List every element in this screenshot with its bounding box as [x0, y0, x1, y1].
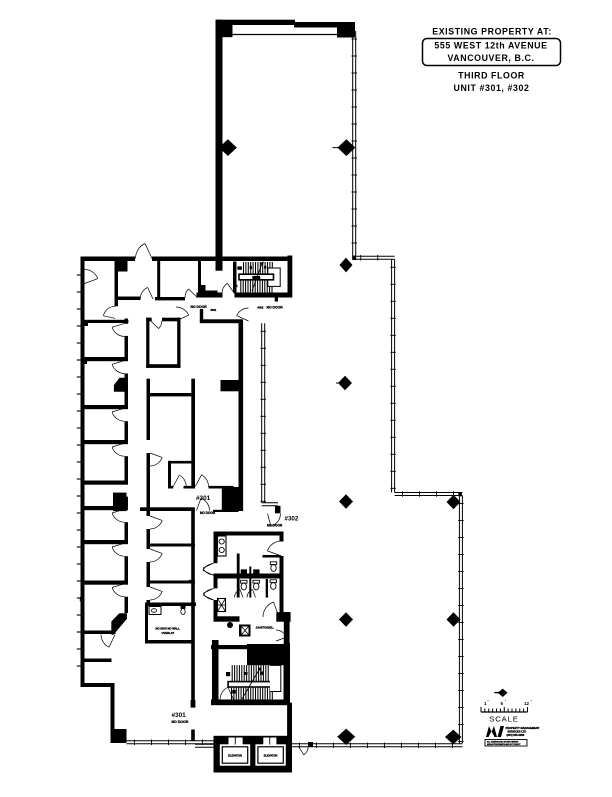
svg-text:NO SKU/ NO WALL: NO SKU/ NO WALL	[156, 627, 181, 631]
svg-text:(604) 555-0000: (604) 555-0000	[507, 733, 525, 737]
svg-text:EXISTING PROPERTY AT:: EXISTING PROPERTY AT:	[432, 27, 551, 37]
svg-text:PROPERTY MANAGEMENT: PROPERTY MANAGEMENT	[506, 726, 540, 730]
svg-text:UNIT #301, #302: UNIT #301, #302	[454, 83, 530, 93]
svg-text:ELEVATOR: ELEVATOR	[228, 754, 242, 758]
svg-text:': '	[505, 699, 506, 704]
svg-text:JANITOR/EL.: JANITOR/EL.	[256, 626, 275, 630]
svg-text:6: 6	[501, 701, 504, 706]
svg-text:ELEVATOR: ELEVATOR	[264, 754, 278, 758]
svg-text:NO DOOR: NO DOOR	[267, 524, 283, 528]
svg-text:NO DOOR: NO DOOR	[267, 306, 284, 310]
svg-text:#301: #301	[196, 495, 211, 502]
svg-text:': '	[531, 699, 532, 704]
svg-text:#301: #301	[211, 308, 217, 312]
svg-text:#302: #302	[258, 306, 264, 310]
svg-text:THIRD FLOOR: THIRD FLOOR	[458, 71, 525, 81]
svg-text:NO DOOR: NO DOOR	[172, 720, 189, 724]
svg-text:': '	[488, 699, 489, 704]
svg-text:NO DOOR: NO DOOR	[191, 305, 208, 309]
svg-text:12: 12	[524, 701, 530, 706]
svg-text:ARE APPROXIMATE AND NOT EXACT: ARE APPROXIMATE AND NOT EXACT	[487, 743, 521, 746]
svg-text:SERVICES LTD: SERVICES LTD	[508, 729, 527, 733]
svg-text:SCALE: SCALE	[489, 715, 518, 724]
svg-text:OVERLAY: OVERLAY	[162, 631, 175, 635]
svg-text:NO DOOR: NO DOOR	[200, 511, 216, 515]
svg-text:#301: #301	[172, 712, 187, 719]
svg-text:#302: #302	[285, 516, 299, 523]
svg-text:VANCOUVER, B.C.: VANCOUVER, B.C.	[447, 53, 534, 63]
svg-text:555 WEST 12th AVENUE: 555 WEST 12th AVENUE	[434, 41, 547, 51]
svg-text:ALL DIMENSIONS SHOWN HEREIN: ALL DIMENSIONS SHOWN HEREIN	[487, 741, 519, 744]
